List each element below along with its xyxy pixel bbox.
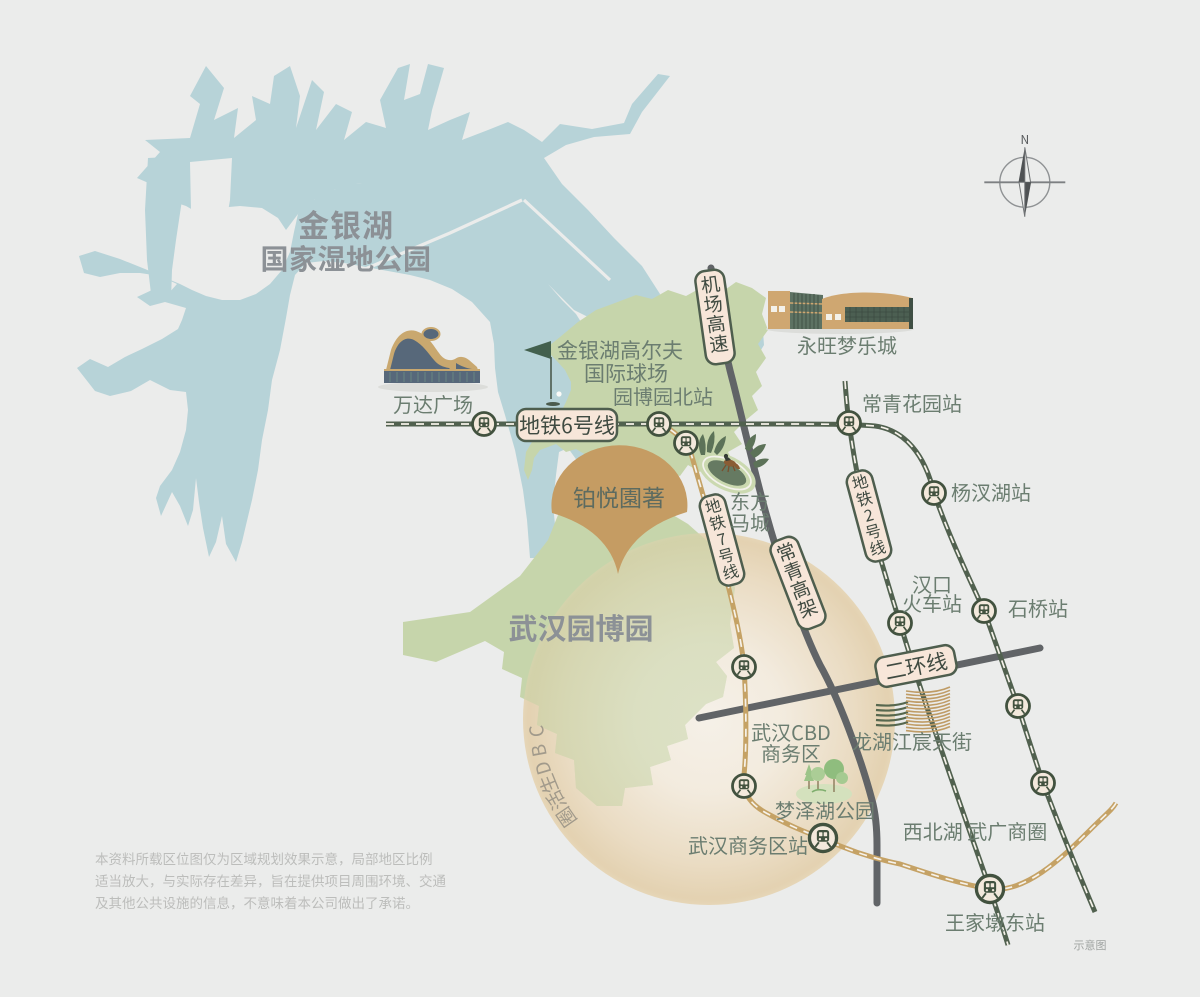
svg-text:万达广场: 万达广场	[393, 389, 473, 418]
svg-text:商务区: 商务区	[761, 738, 821, 767]
svg-text:铂悦園著: 铂悦園著	[573, 479, 665, 513]
svg-text:永旺梦乐城: 永旺梦乐城	[797, 330, 897, 359]
svg-text:龙湖江宸天街: 龙湖江宸天街	[852, 726, 972, 755]
svg-text:西北湖 武广商圈: 西北湖 武广商圈	[903, 816, 1047, 845]
svg-text:马城: 马城	[730, 507, 770, 536]
svg-text:梦泽湖公园: 梦泽湖公园	[775, 795, 875, 824]
svg-text:地铁6号线: 地铁6号线	[519, 410, 615, 440]
svg-text:武汉园博园: 武汉园博园	[508, 606, 653, 648]
svg-text:石桥站: 石桥站	[1008, 593, 1068, 622]
svg-text:火车站: 火车站	[902, 588, 962, 617]
svg-text:杨汊湖站: 杨汊湖站	[951, 477, 1031, 506]
svg-text:示意图: 示意图	[1074, 937, 1107, 953]
svg-text:速: 速	[707, 329, 730, 358]
svg-text:园博园北站: 园博园北站	[613, 381, 713, 410]
svg-text:常青花园站: 常青花园站	[862, 388, 962, 417]
svg-text:及其他公共设施的信息，不意味着本公司做出了承诺。: 及其他公共设施的信息，不意味着本公司做出了承诺。	[95, 892, 419, 912]
svg-text:适当放大，与实际存在差异，旨在提供项目周围环境、交通: 适当放大，与实际存在差异，旨在提供项目周围环境、交通	[95, 870, 446, 890]
svg-text:C: C	[522, 724, 550, 738]
svg-text:N: N	[1020, 131, 1029, 148]
svg-text:本资料所载区位图仅为区域规划效果示意，局部地区比例: 本资料所载区位图仅为区域规划效果示意，局部地区比例	[95, 848, 433, 868]
svg-text:武汉商务区站: 武汉商务区站	[688, 830, 808, 859]
svg-text:王家墩东站: 王家墩东站	[945, 907, 1045, 936]
svg-text:国家湿地公园: 国家湿地公园	[260, 238, 431, 278]
